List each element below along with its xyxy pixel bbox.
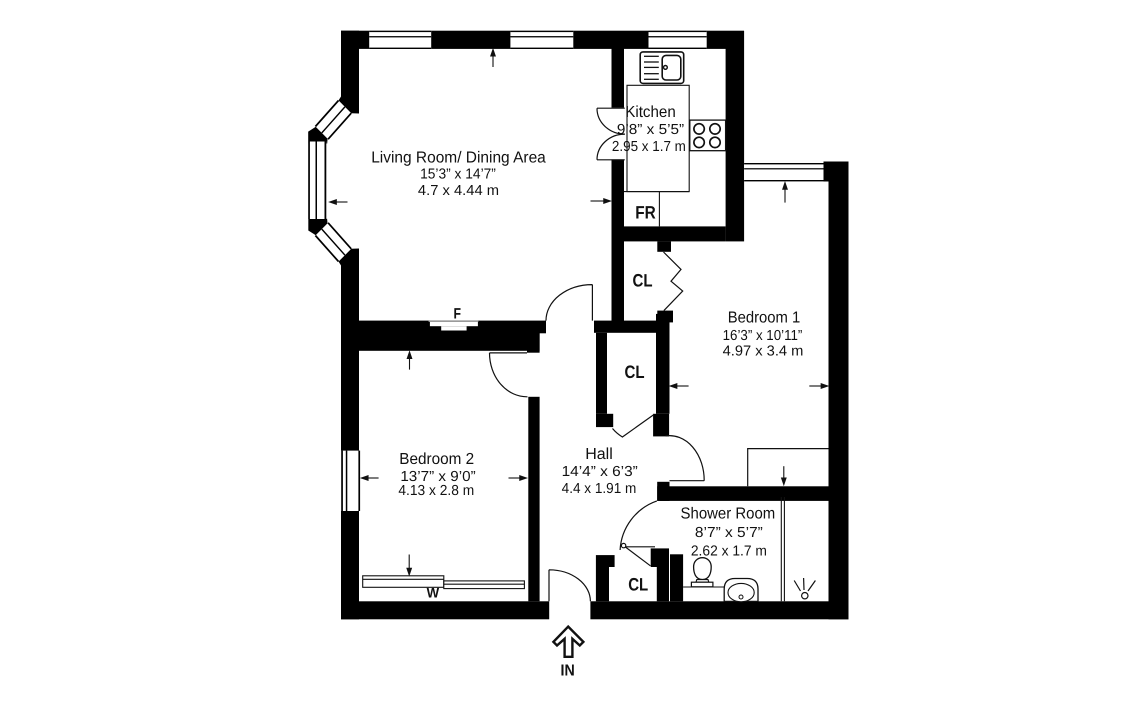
- svg-text:16’3” x 10’11”: 16’3” x 10’11”: [723, 328, 803, 344]
- svg-text:14’4” x 6’3”: 14’4” x 6’3”: [562, 464, 638, 480]
- svg-text:2.62 x 1.7 m: 2.62 x 1.7 m: [691, 544, 767, 560]
- svg-text:Kitchen: Kitchen: [625, 104, 676, 121]
- svg-text:FR: FR: [635, 202, 656, 222]
- svg-text:8’7” x 5’7”: 8’7” x 5’7”: [695, 525, 763, 541]
- svg-text:Bedroom 2: Bedroom 2: [399, 451, 474, 468]
- svg-text:Living Room/ Dining Area: Living Room/ Dining Area: [371, 150, 546, 167]
- svg-text:Shower Room: Shower Room: [681, 506, 776, 523]
- svg-text:15’3” x 14’7”: 15’3” x 14’7”: [420, 166, 496, 182]
- svg-text:9’8” x 5’5”: 9’8” x 5’5”: [617, 122, 684, 138]
- svg-text:CL: CL: [628, 574, 648, 594]
- svg-text:4.13 x 2.8 m: 4.13 x 2.8 m: [398, 483, 474, 499]
- svg-text:CL: CL: [633, 271, 653, 291]
- svg-text:Bedroom 1: Bedroom 1: [728, 309, 801, 326]
- svg-text:IN: IN: [561, 662, 575, 679]
- svg-text:4.97 x 3.4 m: 4.97 x 3.4 m: [723, 344, 804, 360]
- svg-text:F: F: [454, 305, 462, 322]
- svg-text:4.7 x 4.44 m: 4.7 x 4.44 m: [418, 183, 499, 199]
- svg-text:2.95 x 1.7 m: 2.95 x 1.7 m: [612, 139, 686, 155]
- svg-text:Hall: Hall: [585, 446, 613, 463]
- svg-text:4.4 x 1.91 m: 4.4 x 1.91 m: [562, 481, 637, 497]
- svg-text:W: W: [427, 585, 440, 601]
- svg-text:CL: CL: [625, 362, 645, 382]
